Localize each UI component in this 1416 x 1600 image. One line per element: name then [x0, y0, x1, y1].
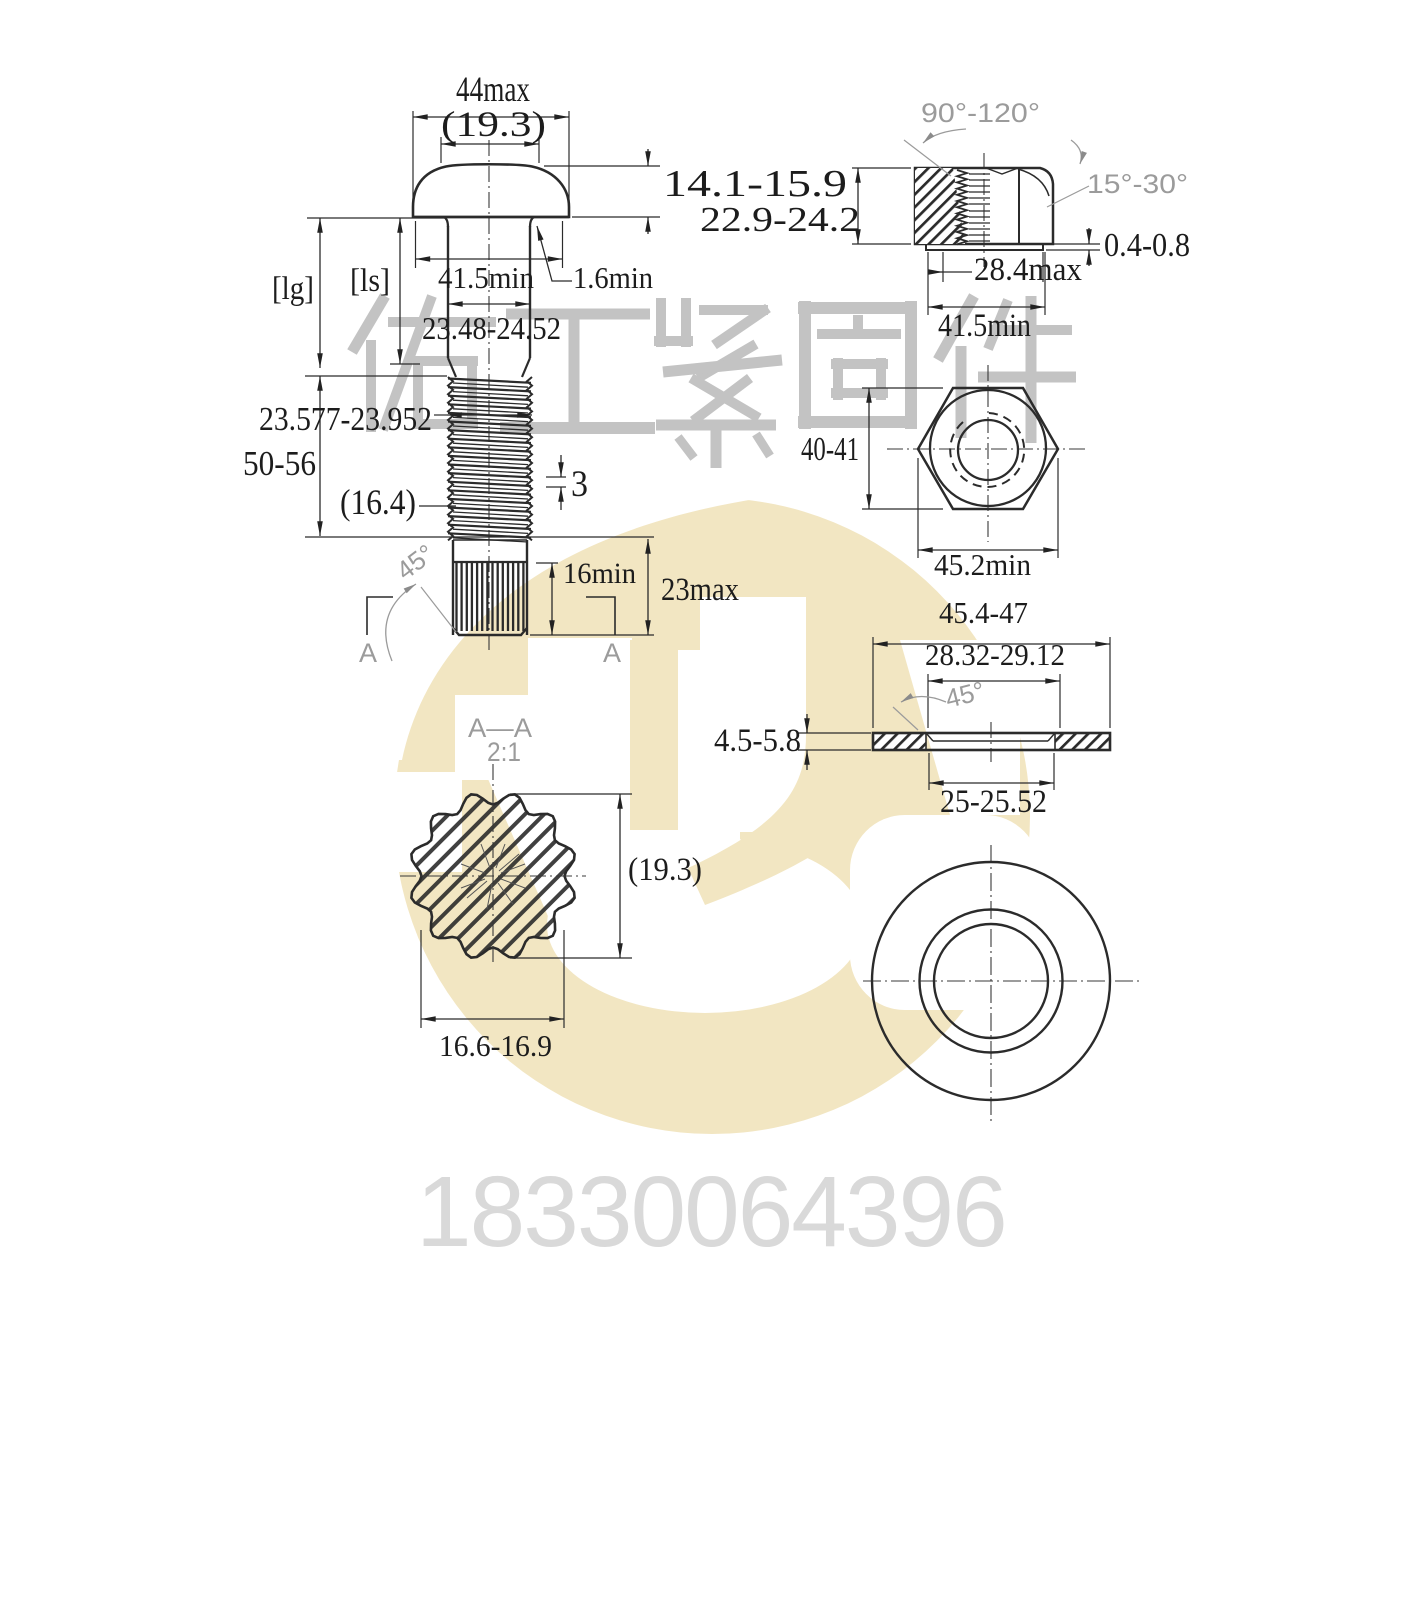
svg-text:18330064396: 18330064396 — [416, 1156, 1006, 1268]
svg-text:45.4-47: 45.4-47 — [939, 595, 1028, 630]
svg-text:2:1: 2:1 — [487, 737, 521, 767]
svg-text:28.32-29.12: 28.32-29.12 — [925, 637, 1065, 672]
svg-text:A: A — [359, 638, 377, 668]
svg-text:16.6-16.9: 16.6-16.9 — [439, 1028, 552, 1063]
svg-text:(19.3): (19.3) — [441, 104, 546, 144]
svg-text:0.4-0.8: 0.4-0.8 — [1104, 227, 1190, 264]
svg-text:28.4max: 28.4max — [974, 252, 1082, 288]
svg-text:[ls]: [ls] — [350, 263, 390, 299]
svg-text:23.48-24.52: 23.48-24.52 — [422, 310, 561, 346]
svg-text:(16.4): (16.4) — [340, 482, 416, 522]
svg-text:41.5min: 41.5min — [438, 260, 534, 295]
svg-text:[lg]: [lg] — [272, 271, 314, 307]
svg-text:41.5min: 41.5min — [938, 308, 1031, 344]
svg-text:(19.3): (19.3) — [628, 852, 702, 888]
svg-text:4.5-5.8: 4.5-5.8 — [714, 723, 801, 759]
svg-text:14.1-15.9: 14.1-15.9 — [663, 163, 847, 205]
svg-text:50-56: 50-56 — [243, 444, 316, 483]
svg-text:44max: 44max — [456, 69, 530, 109]
svg-text:90°-120°: 90°-120° — [921, 98, 1040, 128]
svg-text:25-25.52: 25-25.52 — [940, 784, 1047, 820]
svg-text:22.9-24.2: 22.9-24.2 — [700, 200, 860, 239]
svg-text:16min: 16min — [563, 557, 636, 590]
svg-text:A: A — [603, 638, 621, 668]
svg-text:23.577-23.952: 23.577-23.952 — [259, 401, 432, 438]
svg-text:3: 3 — [571, 464, 588, 505]
svg-text:40-41: 40-41 — [801, 431, 859, 468]
svg-text:45.2min: 45.2min — [934, 547, 1031, 582]
svg-text:1.6min: 1.6min — [573, 260, 653, 295]
svg-text:23max: 23max — [661, 572, 739, 608]
svg-text:15°-30°: 15°-30° — [1087, 169, 1188, 199]
